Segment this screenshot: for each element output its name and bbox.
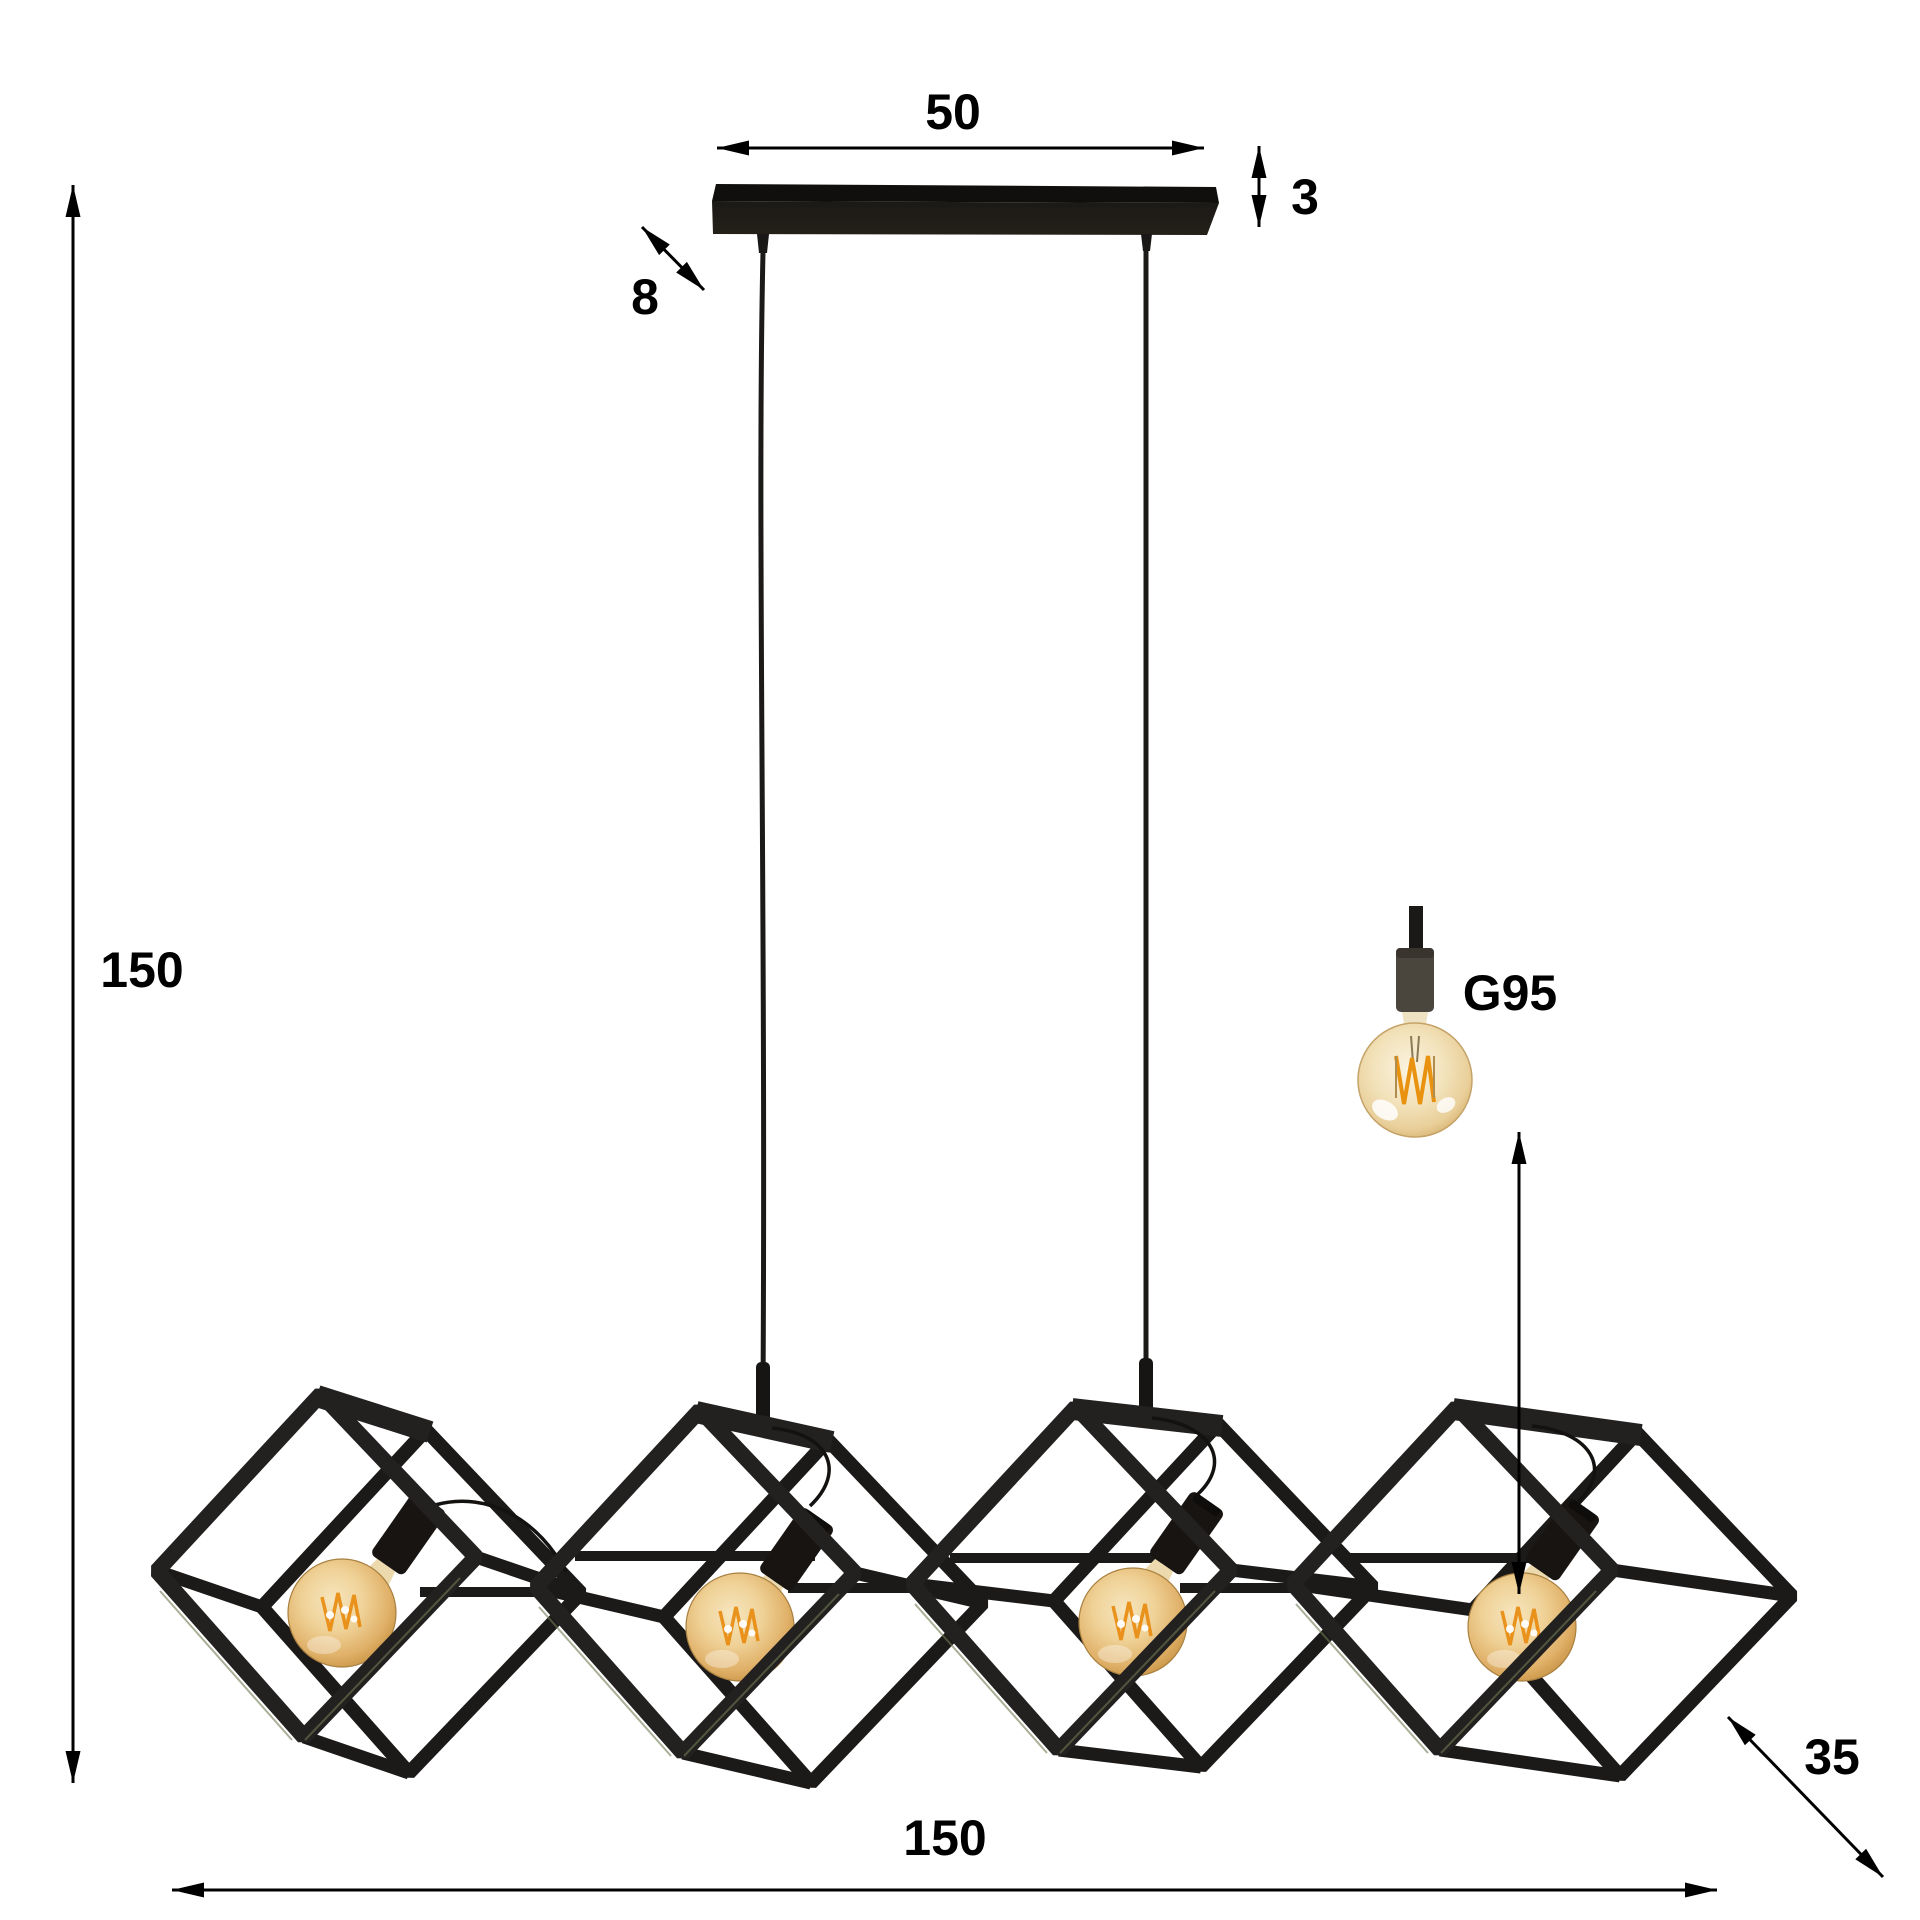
svg-text:35: 35 [1804,1729,1860,1785]
svg-text:3: 3 [1291,169,1319,225]
svg-text:150: 150 [903,1810,986,1866]
svg-text:50: 50 [925,84,981,140]
svg-text:8: 8 [631,269,659,325]
svg-text:150: 150 [100,942,183,998]
svg-text:G95: G95 [1463,965,1558,1021]
